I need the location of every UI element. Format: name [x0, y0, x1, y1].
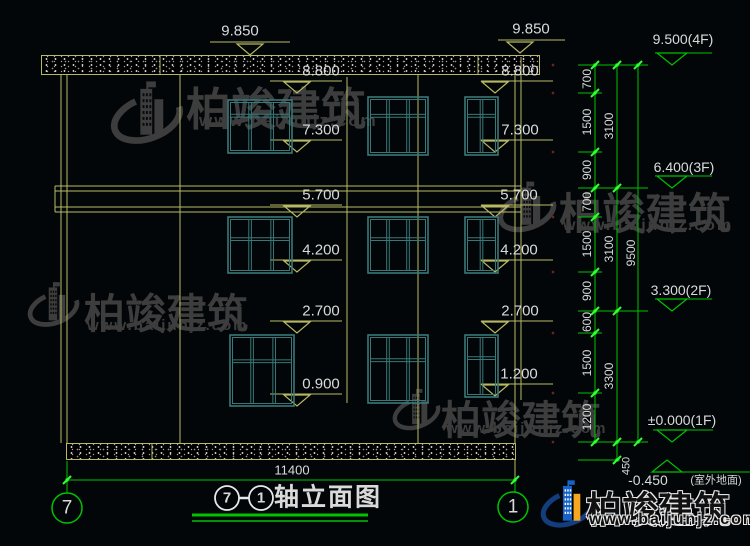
- window-inner-frame: [231, 220, 290, 271]
- level-arrow: [657, 430, 687, 442]
- window-inner-frame: [468, 100, 496, 153]
- level-label: 8.800: [501, 64, 539, 79]
- window-outer-frame: [465, 335, 498, 397]
- chain-subtotal-dim: 3300: [603, 363, 615, 390]
- window-outer-frame: [228, 217, 292, 273]
- floor-marker-label: 6.400(3F): [654, 160, 715, 174]
- window-outer-frame: [228, 100, 292, 153]
- dim-grip-dot: [514, 479, 517, 482]
- chain-subtotal-dim: 3100: [603, 113, 615, 140]
- window-inner-frame: [371, 100, 426, 153]
- title-axis-digit: 1: [257, 491, 265, 506]
- window-inner-frame: [468, 220, 496, 271]
- level-label: 8.800: [302, 64, 340, 79]
- drawing-title: 轴立面图: [274, 486, 382, 511]
- overall-width-dim: 11400: [274, 464, 309, 477]
- chain-dim: 700: [581, 192, 593, 212]
- floor-marker-label: 3.300(2F): [651, 283, 712, 297]
- dim-grip-dot: [594, 64, 597, 67]
- chain-dim: 1500: [581, 231, 593, 258]
- chain-dim: 1200: [581, 404, 593, 431]
- window-outer-frame: [368, 97, 428, 155]
- dim-grip-dot: [594, 392, 597, 395]
- window-outer-frame: [368, 335, 428, 403]
- floor-marker-label: (室外地面): [690, 476, 741, 487]
- floor-marker-label: 9.500(4F): [653, 32, 714, 46]
- dim-grip-dot: [594, 151, 597, 154]
- red-node-dot: [552, 64, 554, 66]
- level-arrow: [657, 299, 687, 311]
- dim-grip-dot: [594, 92, 597, 95]
- dim-grip-dot: [616, 64, 619, 67]
- chain-dim: 900: [581, 160, 593, 180]
- window-inner-frame: [231, 103, 290, 151]
- chain-dim: 600: [581, 312, 593, 332]
- red-node-dot: [552, 271, 554, 273]
- red-node-dot: [552, 216, 554, 218]
- dim-grip-dot: [594, 216, 597, 219]
- dim-grip-dot: [66, 479, 69, 482]
- level-label: 9.850: [512, 22, 550, 37]
- level-arrow: [284, 322, 310, 333]
- cad-canvas: 柏竣建筑www.baijunjz.com 柏竣建筑www.baijunjz.co…: [0, 0, 750, 546]
- chain-dim: 450: [622, 457, 633, 475]
- floor-marker-label: -0.450: [628, 473, 668, 487]
- red-node-dot: [552, 392, 554, 394]
- level-arrow: [507, 42, 533, 53]
- chain-dim: 700: [581, 69, 593, 89]
- red-node-dot: [552, 151, 554, 153]
- axis-bubble-digit: 1: [508, 498, 519, 517]
- chain-subtotal-dim: 3100: [603, 236, 615, 263]
- dim-grip-dot: [637, 441, 640, 444]
- window-outer-frame: [465, 217, 498, 273]
- chain-dim: 900: [581, 281, 593, 301]
- title-axis-digit: 7: [223, 491, 231, 506]
- level-label: 5.700: [302, 188, 340, 203]
- window-inner-frame: [468, 338, 496, 395]
- red-node-dot: [552, 332, 554, 334]
- level-arrow: [482, 82, 508, 93]
- floor-marker-label: ±0.000(1F): [648, 413, 716, 427]
- level-arrow: [237, 44, 263, 55]
- level-label: 9.850: [221, 24, 259, 39]
- level-arrow: [657, 53, 687, 65]
- chain-dim: 1500: [581, 350, 593, 377]
- chain-total-dim: 9500: [625, 240, 637, 267]
- level-label: 7.300: [501, 123, 539, 138]
- level-label: 7.300: [302, 123, 340, 138]
- level-arrow: [284, 395, 310, 406]
- chain-dim: 1500: [581, 109, 593, 136]
- dim-grip-dot: [616, 310, 619, 313]
- dim-grip-dot: [637, 64, 640, 67]
- level-label: 1.200: [500, 367, 538, 382]
- dim-grip-dot: [616, 459, 619, 462]
- level-label: 4.200: [500, 243, 538, 258]
- axis-bubble-digit: 7: [62, 499, 73, 518]
- dim-grip-dot: [594, 187, 597, 190]
- level-label: 0.900: [302, 377, 340, 392]
- level-arrow: [284, 82, 310, 93]
- level-label: 4.200: [302, 243, 340, 258]
- window-outer-frame: [465, 97, 498, 155]
- window-inner-frame: [371, 220, 426, 271]
- dim-grip-dot: [594, 271, 597, 274]
- red-node-dot: [552, 441, 554, 443]
- window-outer-frame: [368, 217, 428, 273]
- level-arrow: [657, 176, 687, 188]
- level-label: 5.700: [500, 188, 538, 203]
- level-arrow: [652, 460, 682, 472]
- dim-grip-dot: [616, 187, 619, 190]
- level-label: 2.700: [302, 304, 340, 319]
- level-arrow: [482, 322, 508, 333]
- red-node-dot: [552, 92, 554, 94]
- dim-grip-dot: [616, 441, 619, 444]
- elevation-drawing: [0, 0, 750, 546]
- level-label: 2.700: [501, 304, 539, 319]
- window-inner-frame: [371, 338, 426, 401]
- dim-grip-dot: [594, 441, 597, 444]
